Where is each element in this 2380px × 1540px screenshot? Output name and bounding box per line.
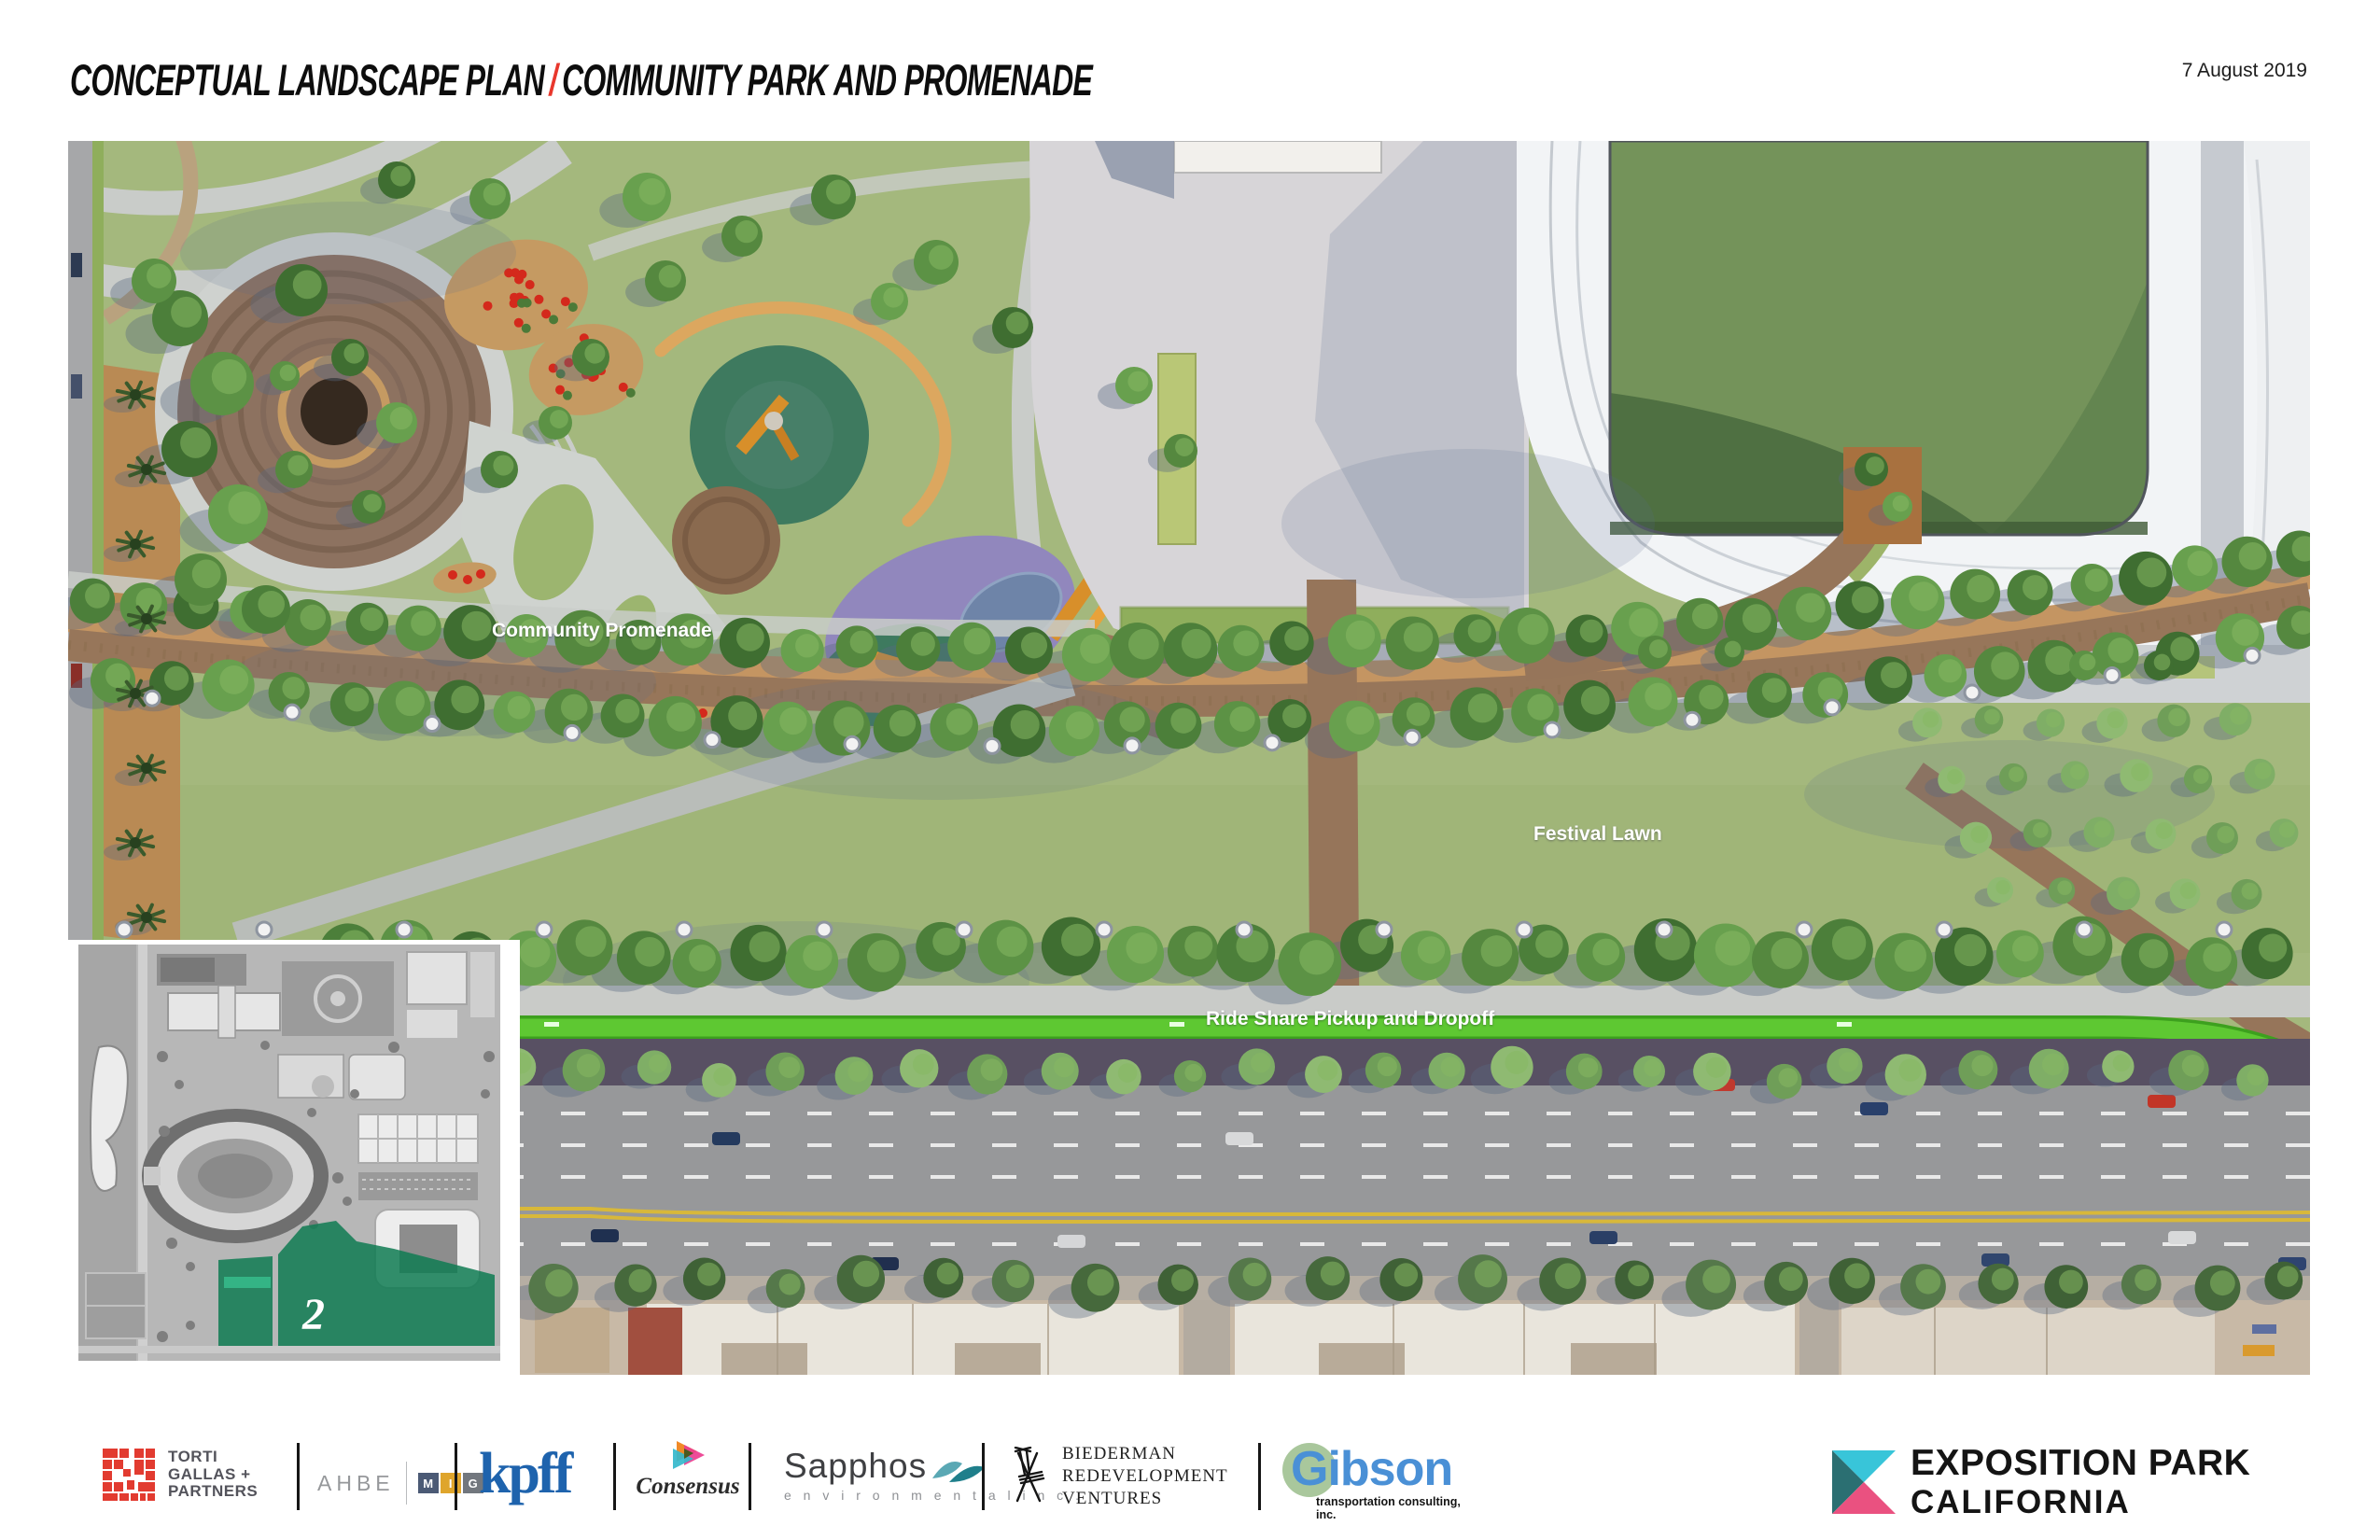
logo-torti-gallas: TORTI GALLAS + PARTNERS (103, 1449, 258, 1501)
sapphos-leaves-icon (931, 1454, 988, 1486)
sheet-date: 7 August 2019 (2182, 60, 2307, 82)
title-right: COMMUNITY PARK AND PROMENADE (562, 55, 1092, 105)
logo-gibson: Gibson transportation consulting, inc. (1282, 1441, 1483, 1516)
ahbe-mig-separator (406, 1462, 407, 1505)
ahbe-wordmark: AHBE (317, 1471, 395, 1496)
mig-block-m: M (418, 1473, 439, 1493)
logo-consensus: Consensus (633, 1441, 743, 1500)
logo-ahbe-mig: AHBE M I G (317, 1462, 483, 1505)
footer-divider (613, 1443, 616, 1510)
torti-line3: PARTNERS (168, 1483, 258, 1500)
exposition-park-icon (1832, 1450, 1896, 1514)
footer-divider (1258, 1443, 1261, 1510)
logo-biederman: BIEDERMAN REDEVELOPMENT VENTURES (1008, 1443, 1228, 1509)
inset-area-number: 2 (301, 1290, 325, 1339)
title-left: CONCEPTUAL LANDSCAPE PLAN (70, 55, 544, 105)
biederman-line1: BIEDERMAN (1062, 1443, 1228, 1465)
sapphos-wordmark: Sapphos (784, 1447, 927, 1486)
footer-divider (297, 1443, 300, 1510)
consensus-triangles-icon (669, 1441, 707, 1469)
mig-block-i: I (441, 1473, 461, 1493)
exposition-park-line1: EXPOSITION PARK (1911, 1443, 2250, 1485)
logo-kpff: kpff (479, 1445, 570, 1503)
biederman-line3: VENTURES (1062, 1488, 1228, 1510)
torti-line2: GALLAS + (168, 1466, 258, 1483)
title-separator: / (544, 55, 562, 105)
torti-line1: TORTI (168, 1449, 258, 1465)
label-community-promenade: Community Promenade (492, 620, 712, 642)
gibson-subtitle: transportation consulting, inc. (1316, 1495, 1483, 1521)
gibson-wordmark: Gibson (1291, 1445, 1452, 1493)
biederman-line2: REDEVELOPMENT (1062, 1465, 1228, 1488)
inset-key-map: 2 (78, 945, 500, 1361)
footer-divider (455, 1443, 457, 1510)
folding-chair-icon (1008, 1447, 1049, 1506)
label-festival-lawn: Festival Lawn (1533, 823, 1662, 846)
logo-exposition-park: EXPOSITION PARK CALIFORNIA (1832, 1443, 2250, 1520)
torti-gallas-mosaic-icon (103, 1449, 155, 1501)
consensus-wordmark: Consensus (633, 1474, 743, 1500)
label-ride-share: Ride Share Pickup and Dropoff (1206, 1008, 1494, 1030)
footer-divider (749, 1443, 751, 1510)
footer-divider (982, 1443, 985, 1510)
page-title: CONCEPTUAL LANDSCAPE PLAN/COMMUNITY PARK… (70, 54, 1092, 105)
exposition-park-line2: CALIFORNIA (1911, 1485, 2250, 1521)
